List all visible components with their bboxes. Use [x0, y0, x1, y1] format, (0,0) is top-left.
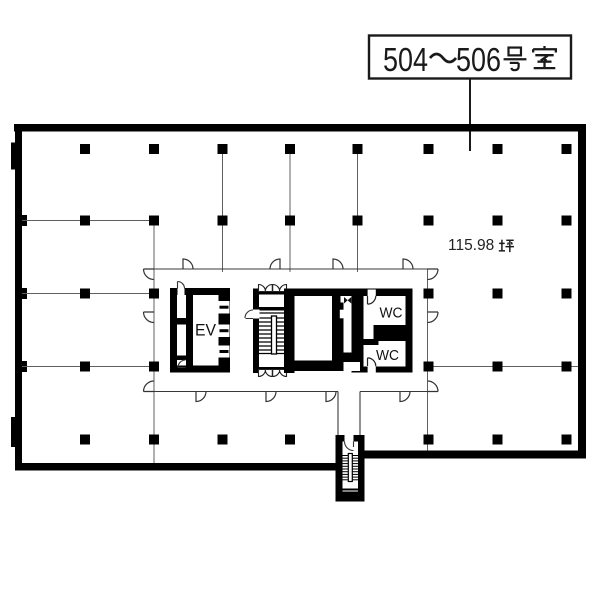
svg-text:EV: EV: [195, 322, 216, 340]
svg-text:WC: WC: [380, 306, 403, 322]
svg-text:506: 506: [456, 41, 501, 78]
svg-text:504: 504: [383, 41, 428, 78]
svg-text:115.98: 115.98: [448, 237, 494, 254]
svg-text:WC: WC: [376, 348, 399, 364]
